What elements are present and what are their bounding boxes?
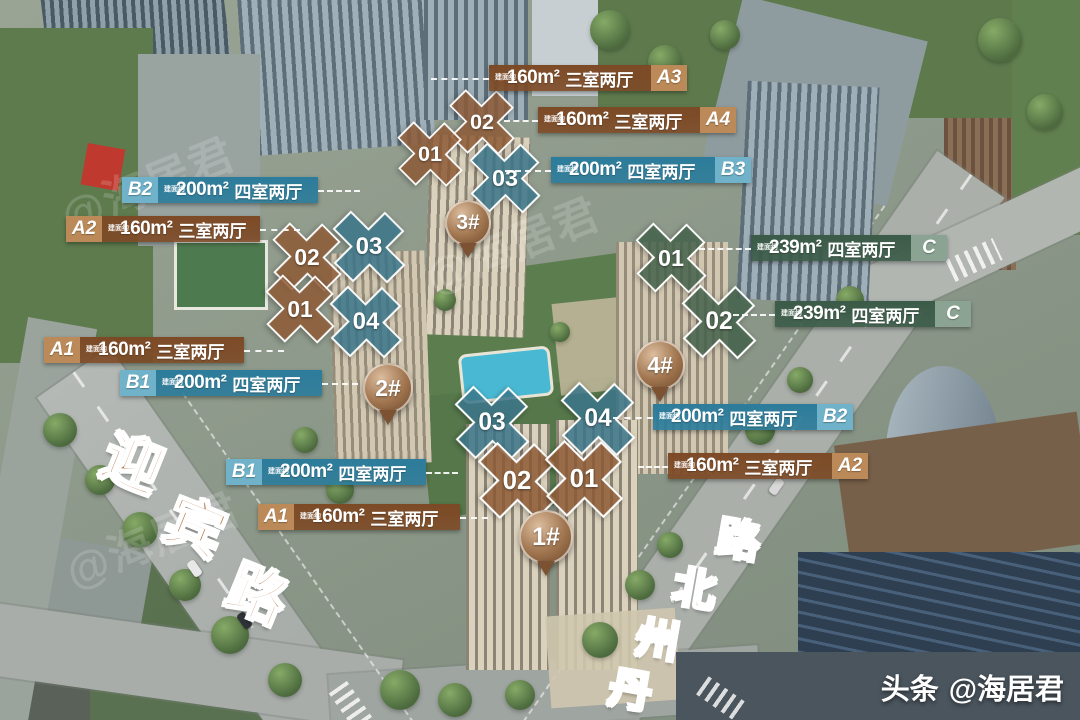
unit-type-badge-A4: A4 <box>700 107 736 133</box>
unit-type-label-text: 建面约239m²四室两厅 <box>775 301 935 327</box>
tree <box>590 10 630 50</box>
unit-type-badge-C: C <box>935 301 971 327</box>
watermark: 头条 @海居君 <box>881 666 1064 708</box>
unit-type-badge-A3: A3 <box>651 65 687 91</box>
label-connector-dash <box>431 78 489 80</box>
building-pin-4: 4# <box>635 340 685 390</box>
unit-type-badge-C: C <box>911 235 947 261</box>
unit-type-label-text: 建面约200m²四室两厅 <box>551 157 715 183</box>
watermark-handle: @海居君 <box>949 666 1064 708</box>
tree <box>268 663 302 697</box>
tree <box>438 683 472 717</box>
label-connector-dash <box>505 170 551 172</box>
unit-type-badge-A2: A2 <box>832 453 868 479</box>
layout-value: 四室两厅 <box>729 405 797 430</box>
unit-type-label-text: 建面约200m²四室两厅 <box>158 177 318 203</box>
tree <box>787 367 813 393</box>
unit-type-badge-B2: B2 <box>817 404 853 430</box>
watermark-brand: 头条 <box>881 666 939 708</box>
unit-type-label-text: 建面约160m²三室两厅 <box>102 216 260 242</box>
unit-type-label-text: 建面约160m²三室两厅 <box>489 65 651 91</box>
building-pin-tail <box>537 561 555 576</box>
unit-type-label-text: 建面约160m²三室两厅 <box>538 107 700 133</box>
roof-unit-number: 04 <box>326 282 406 362</box>
crosswalk <box>329 681 373 720</box>
unit-type-label-A4: 建面约160m²三室两厅A4 <box>538 107 736 133</box>
area-prefix: 建面约 <box>659 413 668 421</box>
unit-type-badge-A1: A1 <box>44 337 80 363</box>
area-prefix: 建面约 <box>108 225 117 233</box>
building-pin-3: 3# <box>445 200 491 246</box>
building-pin-tail <box>651 387 669 402</box>
tree <box>505 680 535 710</box>
unit-type-label-text: 建面约160m²三室两厅 <box>80 337 244 363</box>
label-connector-dash <box>244 350 284 352</box>
label-connector-dash <box>322 383 358 385</box>
building-pin-2: 2# <box>363 363 413 413</box>
label-connector-dash <box>460 517 488 519</box>
tree <box>710 20 740 50</box>
unit-type-label-A1: A1建面约160m²三室两厅 <box>258 504 460 530</box>
area-prefix: 建面约 <box>300 513 309 521</box>
layout-value: 四室两厅 <box>234 178 302 203</box>
layout-value: 三室两厅 <box>614 108 682 133</box>
layout-value: 四室两厅 <box>827 236 895 261</box>
layout-value: 三室两厅 <box>565 66 633 91</box>
unit-type-badge-B1: B1 <box>226 459 262 485</box>
area-prefix: 建面约 <box>557 166 566 174</box>
label-connector-dash <box>260 229 300 231</box>
building-pin-body: 1# <box>519 510 573 564</box>
tree <box>978 18 1022 62</box>
building-pin-1: 1# <box>519 510 573 564</box>
aerial-masterplan: @海居君@海居君@海居君020103030201040102030402013#… <box>0 0 1080 720</box>
unit-type-label-text: 建面约160m²三室两厅 <box>294 504 460 530</box>
unit-type-badge-A1: A1 <box>258 504 294 530</box>
roof-unit-tag-02: 02 <box>678 281 760 363</box>
unit-type-label-A2: 建面约160m²三室两厅A2 <box>668 453 868 479</box>
crosswalk <box>945 238 1002 282</box>
unit-type-label-B2: B2建面约200m²四室两厅 <box>122 177 318 203</box>
building-pin-body: 3# <box>445 200 491 246</box>
tree <box>292 427 318 453</box>
unit-type-label-B1: B1建面约200m²四室两厅 <box>226 459 426 485</box>
car <box>768 477 785 496</box>
road-name-char: 路 <box>712 503 765 572</box>
unit-type-badge-A2: A2 <box>66 216 102 242</box>
building-pin-tail <box>379 410 397 425</box>
area-prefix: 建面约 <box>164 186 173 194</box>
tree <box>582 622 618 658</box>
layout-value: 四室两厅 <box>627 158 695 183</box>
unit-type-label-B1: B1建面约200m²四室两厅 <box>120 370 322 396</box>
unit-type-label-text: 建面约160m²三室两厅 <box>668 453 832 479</box>
building-pin-body: 2# <box>363 363 413 413</box>
unit-type-label-text: 建面约239m²四室两厅 <box>751 235 911 261</box>
area-prefix: 建面约 <box>757 244 766 252</box>
area-prefix: 建面约 <box>544 116 553 124</box>
unit-type-label-B2: 建面约200m²四室两厅B2 <box>653 404 853 430</box>
unit-type-label-C: 建面约239m²四室两厅C <box>751 235 947 261</box>
tree <box>550 322 570 342</box>
tree <box>43 413 77 447</box>
area-prefix: 建面约 <box>86 346 95 354</box>
tree <box>380 670 420 710</box>
unit-type-label-C: 建面约239m²四室两厅C <box>775 301 971 327</box>
area-prefix: 建面约 <box>162 379 171 387</box>
crosswalk <box>696 676 748 720</box>
label-connector-dash <box>504 120 538 122</box>
layout-value: 三室两厅 <box>744 454 812 479</box>
unit-type-label-A3: 建面约160m²三室两厅A3 <box>489 65 687 91</box>
roof-unit-tag-04: 04 <box>326 282 406 362</box>
label-connector-dash <box>699 248 751 250</box>
label-connector-dash <box>613 417 653 419</box>
layout-value: 四室两厅 <box>851 302 919 327</box>
unit-type-label-A1: A1建面约160m²三室两厅 <box>44 337 244 363</box>
building-pin-body: 4# <box>635 340 685 390</box>
unit-type-label-B3: 建面约200m²四室两厅B3 <box>551 157 751 183</box>
layout-value: 四室两厅 <box>232 371 300 396</box>
unit-type-label-text: 建面约200m²四室两厅 <box>653 404 817 430</box>
layout-value: 三室两厅 <box>370 505 438 530</box>
label-connector-dash <box>426 472 458 474</box>
tree <box>625 570 655 600</box>
area-prefix: 建面约 <box>495 74 504 82</box>
area-prefix: 建面约 <box>674 462 683 470</box>
tree <box>1027 94 1063 130</box>
annotation-layer: @海居君@海居君@海居君020103030201040102030402013#… <box>0 0 1080 720</box>
building-pin-tail <box>459 243 477 258</box>
unit-type-label-text: 建面约200m²四室两厅 <box>156 370 322 396</box>
label-connector-dash <box>318 190 360 192</box>
unit-type-label-text: 建面约200m²四室两厅 <box>262 459 426 485</box>
layout-value: 三室两厅 <box>156 338 224 363</box>
label-connector-dash <box>733 314 775 316</box>
roof-unit-number: 02 <box>678 281 760 363</box>
unit-type-badge-B2: B2 <box>122 177 158 203</box>
unit-type-badge-B3: B3 <box>715 157 751 183</box>
area-prefix: 建面约 <box>268 468 277 476</box>
layout-value: 四室两厅 <box>338 460 406 485</box>
unit-type-label-A2: A2建面约160m²三室两厅 <box>66 216 260 242</box>
unit-type-badge-B1: B1 <box>120 370 156 396</box>
label-connector-dash <box>638 466 668 468</box>
area-prefix: 建面约 <box>781 310 790 318</box>
layout-value: 三室两厅 <box>178 217 246 242</box>
